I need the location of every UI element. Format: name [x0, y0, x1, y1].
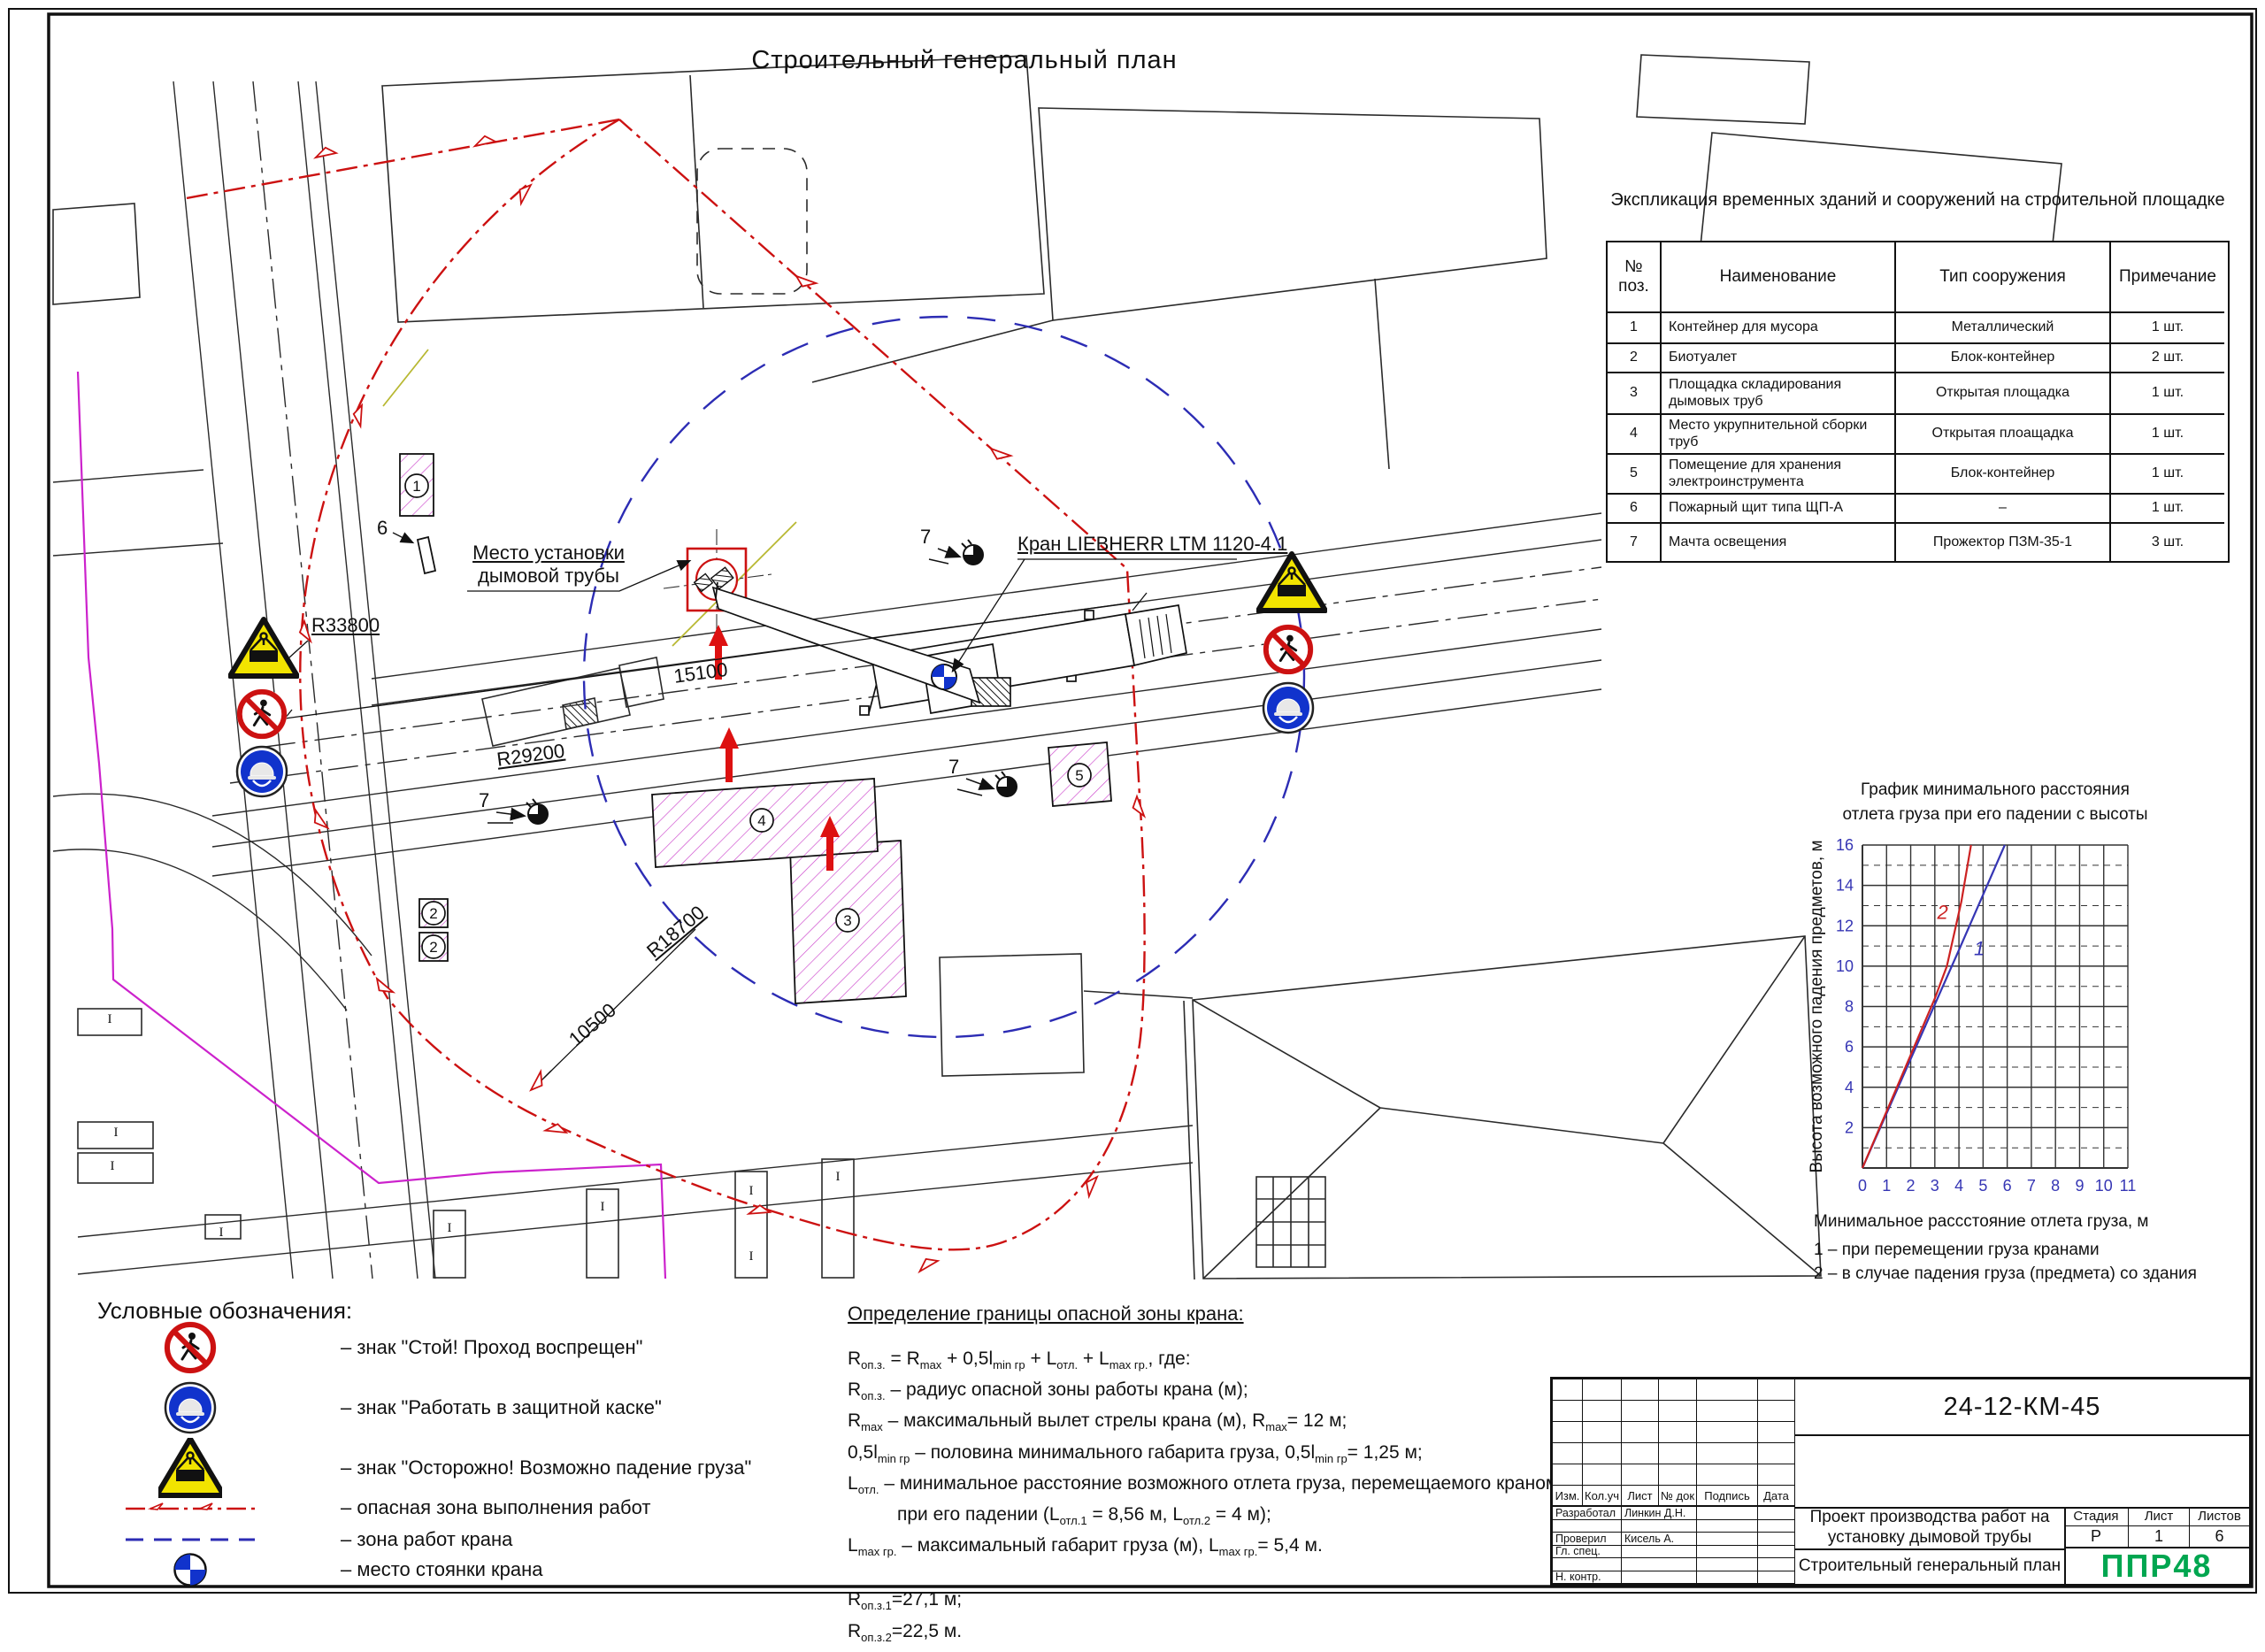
tb-role-name	[1622, 1520, 1697, 1533]
svg-text:Высота возможного падения пред: Высота возможного падения предметов, м	[1808, 840, 1826, 1172]
svg-text:10: 10	[2095, 1177, 2113, 1195]
tb-header-cell: Подпись	[1697, 1486, 1758, 1507]
calc-line: Lmax гр. – максимальный габарит груза (м…	[848, 1535, 1485, 1558]
tb-role-name	[1622, 1558, 1697, 1571]
svg-text:2: 2	[1845, 1118, 1854, 1136]
tb-role-name	[1622, 1571, 1697, 1585]
danger-zone-calc: Определение границы опасной зоны крана: …	[848, 1302, 1485, 1652]
tb-role-name: Линкин Д.Н.	[1622, 1507, 1697, 1520]
legend-item: – место стоянки крана	[124, 1550, 543, 1589]
tb-role-name: Кисель А.	[1622, 1533, 1697, 1546]
svg-text:12: 12	[1836, 917, 1854, 934]
svg-text:10: 10	[1836, 957, 1854, 975]
sheets-header: Листов	[2190, 1507, 2249, 1526]
sheet-name: Строительный генеральный план	[1795, 1548, 2066, 1584]
svg-text:14: 14	[1836, 877, 1854, 895]
svg-text:1 – при перемещении груза кран: 1 – при перемещении груза кранами	[1814, 1241, 2100, 1259]
calc-line: Lотл. – минимальное расстояние возможног…	[848, 1473, 1485, 1496]
drawing-sheet: 122345777IIIIIIIII Строительный генераль…	[0, 0, 2265, 1602]
helmet-sign-icon	[124, 1379, 257, 1436]
title-block: Изм.Кол.учЛист№ докПодписьДатаРазработал…	[1550, 1377, 2252, 1587]
svg-text:2 – в случае падения груза (пр: 2 – в случае падения груза (предмета) со…	[1814, 1264, 2197, 1283]
tb-role-name	[1758, 1571, 1795, 1585]
svg-text:16: 16	[1836, 836, 1854, 854]
crane-parking-symbol-icon	[124, 1550, 257, 1589]
no-pedestrian-sign-icon	[124, 1320, 257, 1375]
legend-item: – знак "Стой! Проход воспрещен"	[124, 1317, 642, 1379]
tb-role-name	[1758, 1533, 1795, 1546]
tb-role-name	[1758, 1558, 1795, 1571]
falling-load-sign-icon	[124, 1438, 257, 1498]
svg-text:4: 4	[1954, 1177, 1963, 1195]
tb-role-label	[1553, 1520, 1622, 1533]
svg-text:8: 8	[1845, 998, 1854, 1016]
calc-line: при его падении (Lотл.1 = 8,56 м, Lотл.2…	[848, 1504, 1485, 1527]
tb-role-name	[1697, 1520, 1758, 1533]
tb-header-cell: Лист	[1622, 1486, 1659, 1507]
org-cell	[1795, 1434, 2249, 1509]
tb-role-name	[1697, 1507, 1758, 1520]
legend-item: – опасная зона выполнения работ	[124, 1490, 650, 1525]
sheet-header: Лист	[2129, 1507, 2190, 1526]
calc-line: Rmax – максимальный вылет стрелы крана (…	[848, 1410, 1485, 1433]
project-name: Проект производства работ на установку д…	[1795, 1507, 2066, 1550]
tb-header-cell: Изм.	[1553, 1486, 1583, 1507]
svg-text:4: 4	[1845, 1079, 1854, 1096]
sheet-value: 1	[2129, 1526, 2190, 1548]
svg-text:0: 0	[1858, 1177, 1867, 1195]
svg-text:8: 8	[2051, 1177, 2060, 1195]
stage-value: Р	[2064, 1526, 2129, 1548]
legend-item: – знак "Работать в защитной каске"	[124, 1377, 662, 1439]
svg-text:6: 6	[2003, 1177, 2012, 1195]
tb-role-name	[1697, 1546, 1758, 1559]
svg-text:2: 2	[1937, 901, 1948, 923]
svg-text:3: 3	[1931, 1177, 1939, 1195]
crane-zone-line-icon	[124, 1534, 257, 1545]
tb-role-label: Гл. спец.	[1553, 1546, 1622, 1559]
tb-role-label: Проверил	[1553, 1533, 1622, 1546]
title-block-grid: Изм.Кол.учЛист№ докПодписьДатаРазработал…	[1553, 1379, 1795, 1584]
tb-role-name	[1758, 1507, 1795, 1520]
danger-zone-line-icon	[124, 1501, 257, 1515]
svg-text:отлета груза при его падении с: отлета груза при его падении с высоты	[1842, 805, 2147, 824]
svg-text:1: 1	[1974, 937, 1985, 959]
sheets-value: 6	[2190, 1526, 2249, 1548]
tb-role-name	[1622, 1546, 1697, 1559]
calc-line: Rоп.з. = Rmax + 0,5lmin гр + Lотл. + Lma…	[848, 1348, 1485, 1372]
svg-text:11: 11	[2120, 1177, 2137, 1195]
calc-line: Rоп.з.2=22,5 м.	[848, 1621, 1485, 1644]
tb-header-cell: Кол.уч	[1583, 1486, 1622, 1507]
document-number: 24-12-КМ-45	[1795, 1379, 2249, 1436]
tb-role-label	[1553, 1558, 1622, 1571]
calc-line: Rоп.з.1=27,1 м;	[848, 1589, 1485, 1612]
svg-text:5: 5	[1978, 1177, 1987, 1195]
svg-text:График минимального расстояния: График минимального расстояния	[1861, 780, 2130, 799]
tb-header-cell: № док	[1659, 1486, 1697, 1507]
svg-text:Минимальное рассстояние отлета: Минимальное рассстояние отлета груза, м	[1814, 1212, 2148, 1231]
tb-header-cell: Дата	[1758, 1486, 1795, 1507]
calc-line: 0,5lmin гр – половина минимального габар…	[848, 1442, 1485, 1465]
tb-role-name	[1758, 1546, 1795, 1559]
svg-text:1: 1	[1882, 1177, 1891, 1195]
stage-header: Стадия	[2064, 1507, 2129, 1526]
tb-role-name	[1697, 1533, 1758, 1546]
calc-title: Определение границы опасной зоны крана:	[848, 1302, 1485, 1325]
tb-role-name	[1697, 1558, 1758, 1571]
tb-role-name	[1697, 1571, 1758, 1585]
svg-text:7: 7	[2027, 1177, 2036, 1195]
logo: ППР48	[2101, 1548, 2213, 1585]
tb-role-label: Н. контр.	[1553, 1571, 1622, 1585]
tb-role-name	[1758, 1520, 1795, 1533]
calc-line: Rоп.з. – радиус опасной зоны работы кран…	[848, 1379, 1485, 1402]
svg-text:2: 2	[1907, 1177, 1916, 1195]
tb-role-label: Разработал	[1553, 1507, 1622, 1520]
svg-text:6: 6	[1845, 1038, 1854, 1056]
logo-cell: ППР48	[2064, 1548, 2249, 1584]
svg-text:9: 9	[2075, 1177, 2084, 1195]
